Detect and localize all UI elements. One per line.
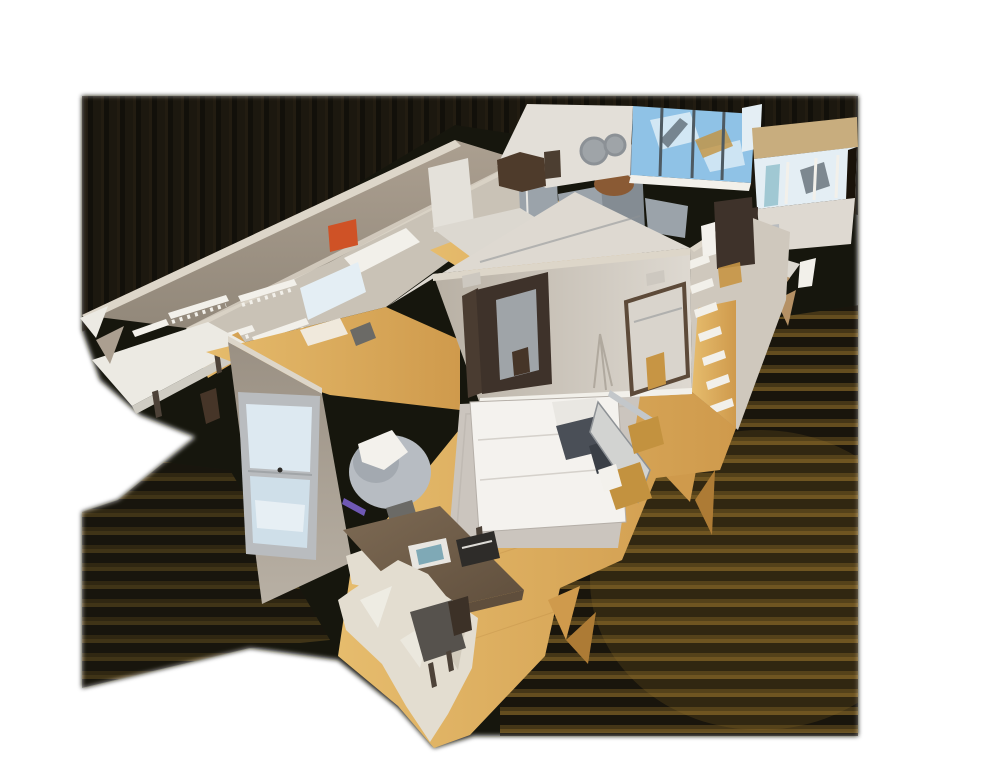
window-mullion bbox=[722, 112, 724, 180]
window-latch bbox=[278, 468, 283, 473]
hanging-towel bbox=[701, 222, 716, 258]
closet-floor-glow bbox=[646, 352, 666, 390]
window-mullion-white bbox=[786, 162, 788, 204]
window-mullion bbox=[692, 110, 694, 178]
dollhouse-model-canvas: 3D dollhouse cutaway view of a scanned a… bbox=[0, 0, 994, 779]
round-mirror bbox=[605, 135, 625, 155]
sash-window-upper-pane bbox=[246, 404, 312, 472]
framed-art bbox=[544, 150, 561, 179]
window-mullion-white bbox=[836, 155, 838, 198]
window-mullion-white bbox=[814, 158, 816, 200]
sofa bbox=[497, 152, 546, 192]
round-mirror bbox=[581, 138, 607, 164]
mirror-reflection-object bbox=[512, 347, 530, 376]
bathroom-door bbox=[714, 197, 755, 269]
window-mullion bbox=[660, 108, 662, 176]
window-cloud-streak bbox=[255, 500, 305, 532]
dollhouse-viewport[interactable]: 3D dollhouse cutaway view of a scanned a… bbox=[0, 0, 994, 779]
glass-teal-streak bbox=[764, 164, 780, 207]
